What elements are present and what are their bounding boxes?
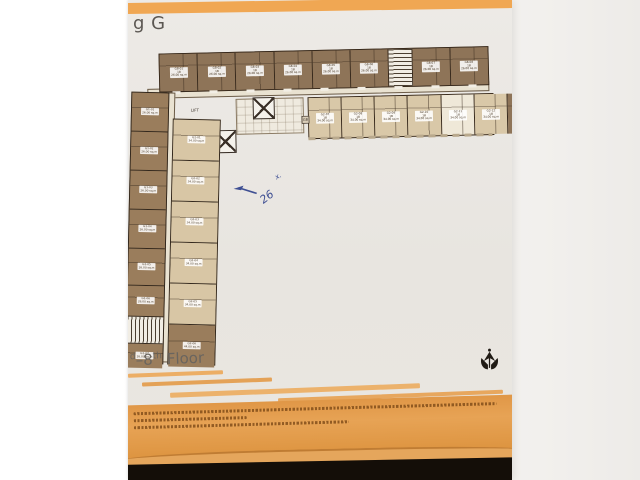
unit: G2-02 34.00 sq.m — [172, 161, 219, 203]
unit: G2-09 1B 34.00 sq.m — [375, 96, 409, 137]
unit: G2-10 1B 34.00 sq.m — [408, 95, 442, 136]
left-wing: G1-01 26.00 sq.m G1-02 26.00 sq.m G1-03 … — [128, 92, 219, 364]
north-arrow-icon — [477, 347, 502, 372]
unit-label: G1-05 26.00 sq.m — [137, 263, 155, 271]
pen-annotation: 26 x. — [229, 164, 310, 222]
unit-label: G2-02 34.00 sq.m — [186, 177, 204, 185]
unit-label: G1-06 26.00 sq.m — [137, 297, 155, 305]
floorplan-sheet: g G G8-01 1B 26.00 sq.m G8-02 1B 26.00 s… — [128, 0, 512, 480]
accent-stripe — [128, 370, 223, 377]
unit: G2-05 34.00 sq.m — [169, 284, 216, 326]
fine-print-line — [134, 421, 349, 430]
unit: G1-05 26.00 sq.m — [128, 249, 165, 287]
unit-label: G2-12 1B 34.00 sq.m — [482, 109, 500, 120]
unit: G8-04 1B 26.00 sq.m — [274, 51, 313, 89]
unit-label: G2-03 34.00 sq.m — [185, 218, 203, 226]
unit — [389, 49, 413, 87]
accent-stripe — [142, 378, 272, 387]
pen-annotation-number: 26 — [257, 188, 276, 207]
unit-label: G1-04 26.00 sq.m — [138, 225, 156, 233]
unit: G1-03 26.00 sq.m — [130, 171, 167, 211]
unit: G2-12 1B 34.00 sq.m — [474, 94, 508, 135]
unit: G8-06 1B 26.00 sq.m — [350, 49, 389, 87]
unit: G2-08 1B 34.00 sq.m — [342, 97, 376, 138]
top-accent-band — [128, 0, 512, 14]
unit-label: G2-09 1B 34.00 sq.m — [382, 111, 400, 122]
unit: G8-03 1B 26.00 sq.m — [236, 52, 275, 90]
gb-shaft: GB — [302, 116, 310, 124]
unit: G1-04 26.00 sq.m — [129, 210, 166, 250]
unit: G2-04 34.00 sq.m — [170, 243, 217, 285]
fine-print-line — [134, 402, 497, 415]
unit: G1-02 26.00 sq.m — [131, 132, 168, 172]
unit-label: G8-01 1B 26.00 sq.m — [169, 67, 187, 78]
fine-print-line — [134, 416, 247, 422]
unit-label: G1-01 26.00 sq.m — [141, 108, 159, 116]
unit-label: G2-11 1B 34.00 sq.m — [449, 109, 467, 120]
unit: G2-13 1B 34.00 sq.m — [507, 93, 512, 134]
unit-label: G1-02 26.00 sq.m — [140, 147, 158, 155]
unit-label: G2-01 34.00 sq.m — [187, 136, 205, 144]
unit-label: G2-07 1B 34.00 sq.m — [316, 112, 334, 123]
unit-label: G2-08 1B 34.00 sq.m — [349, 112, 367, 123]
unit: G8-08 1B 26.00 sq.m — [450, 47, 488, 85]
unit: G2-11 1B 34.00 sq.m — [441, 94, 475, 135]
unit-label: G2-10 1B 34.00 sq.m — [415, 110, 433, 121]
unit: G1-01 26.00 sq.m — [132, 93, 169, 133]
pen-annotation-tick: x. — [273, 171, 283, 182]
unit-label: G2-04 34.00 sq.m — [184, 259, 202, 267]
wing-right-column: G2-01 34.00 sq.m G2-02 34.00 sq.m G2-03 … — [167, 119, 221, 366]
unit-label: G1-03 26.00 sq.m — [139, 186, 157, 194]
building-title: g G — [133, 13, 166, 34]
mid-unit-row: G2-07 1B 34.00 sq.m G2-08 1B 34.00 sq.m … — [308, 93, 495, 139]
unit-label: G2-05 34.00 sq.m — [184, 300, 202, 308]
unit: G2-03 34.00 sq.m — [171, 202, 218, 244]
lift-shaft-icon — [252, 97, 274, 119]
unit: G1-06 26.00 sq.m — [128, 286, 164, 318]
unit: G8-01 1B 26.00 sq.m — [160, 54, 199, 92]
unit-label: G8-07 1B 26.00 sq.m — [422, 61, 440, 72]
unit-label: G8-08 1B 26.00 sq.m — [460, 61, 478, 72]
unit — [128, 317, 163, 345]
floor-label: d–8th Floor — [130, 349, 205, 370]
unit-label: G8-02 1B 26.00 sq.m — [208, 66, 226, 77]
unit-label: G8-05 1B 26.00 sq.m — [322, 64, 340, 75]
unit: G2-07 1B 34.00 sq.m — [309, 97, 343, 138]
unit: G8-05 1B 26.00 sq.m — [312, 50, 351, 88]
floor-plan: G8-01 1B 26.00 sq.m G8-02 1B 26.00 sq.m … — [138, 38, 497, 376]
unit-label: G8-04 1B 26.00 sq.m — [284, 65, 302, 76]
unit: G8-02 1B 26.00 sq.m — [198, 53, 237, 91]
unit-label: G8-06 1B 26.00 sq.m — [360, 63, 378, 74]
unit-label: G8-03 1B 26.00 sq.m — [246, 65, 264, 76]
wing-left-column: G1-01 26.00 sq.m G1-02 26.00 sq.m G1-03 … — [128, 92, 169, 365]
unit: G8-07 1B 26.00 sq.m — [412, 48, 451, 86]
unit: G2-01 34.00 sq.m — [173, 120, 220, 162]
